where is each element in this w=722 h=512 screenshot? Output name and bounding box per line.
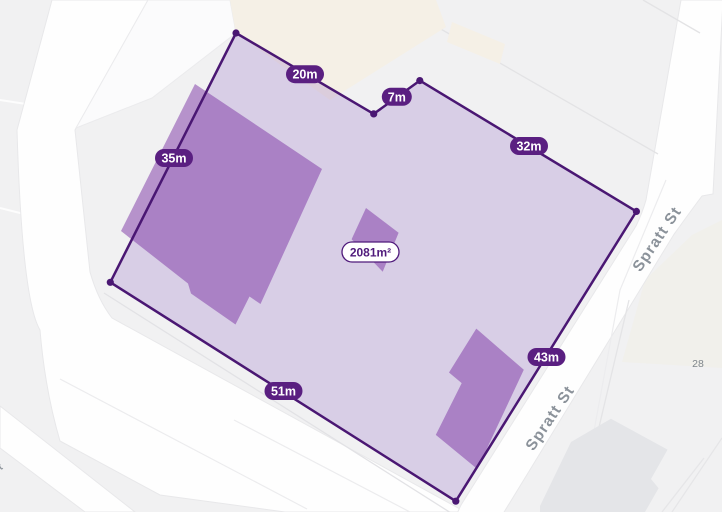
svg-text:35m: 35m [161, 152, 186, 166]
svg-text:51m: 51m [271, 385, 296, 399]
svg-text:2081m²: 2081m² [350, 245, 391, 259]
svg-text:43m: 43m [534, 351, 559, 365]
svg-text:32m: 32m [516, 140, 541, 154]
svg-text:28: 28 [692, 358, 704, 370]
svg-text:20m: 20m [292, 68, 317, 82]
svg-text:7m: 7m [388, 90, 406, 104]
